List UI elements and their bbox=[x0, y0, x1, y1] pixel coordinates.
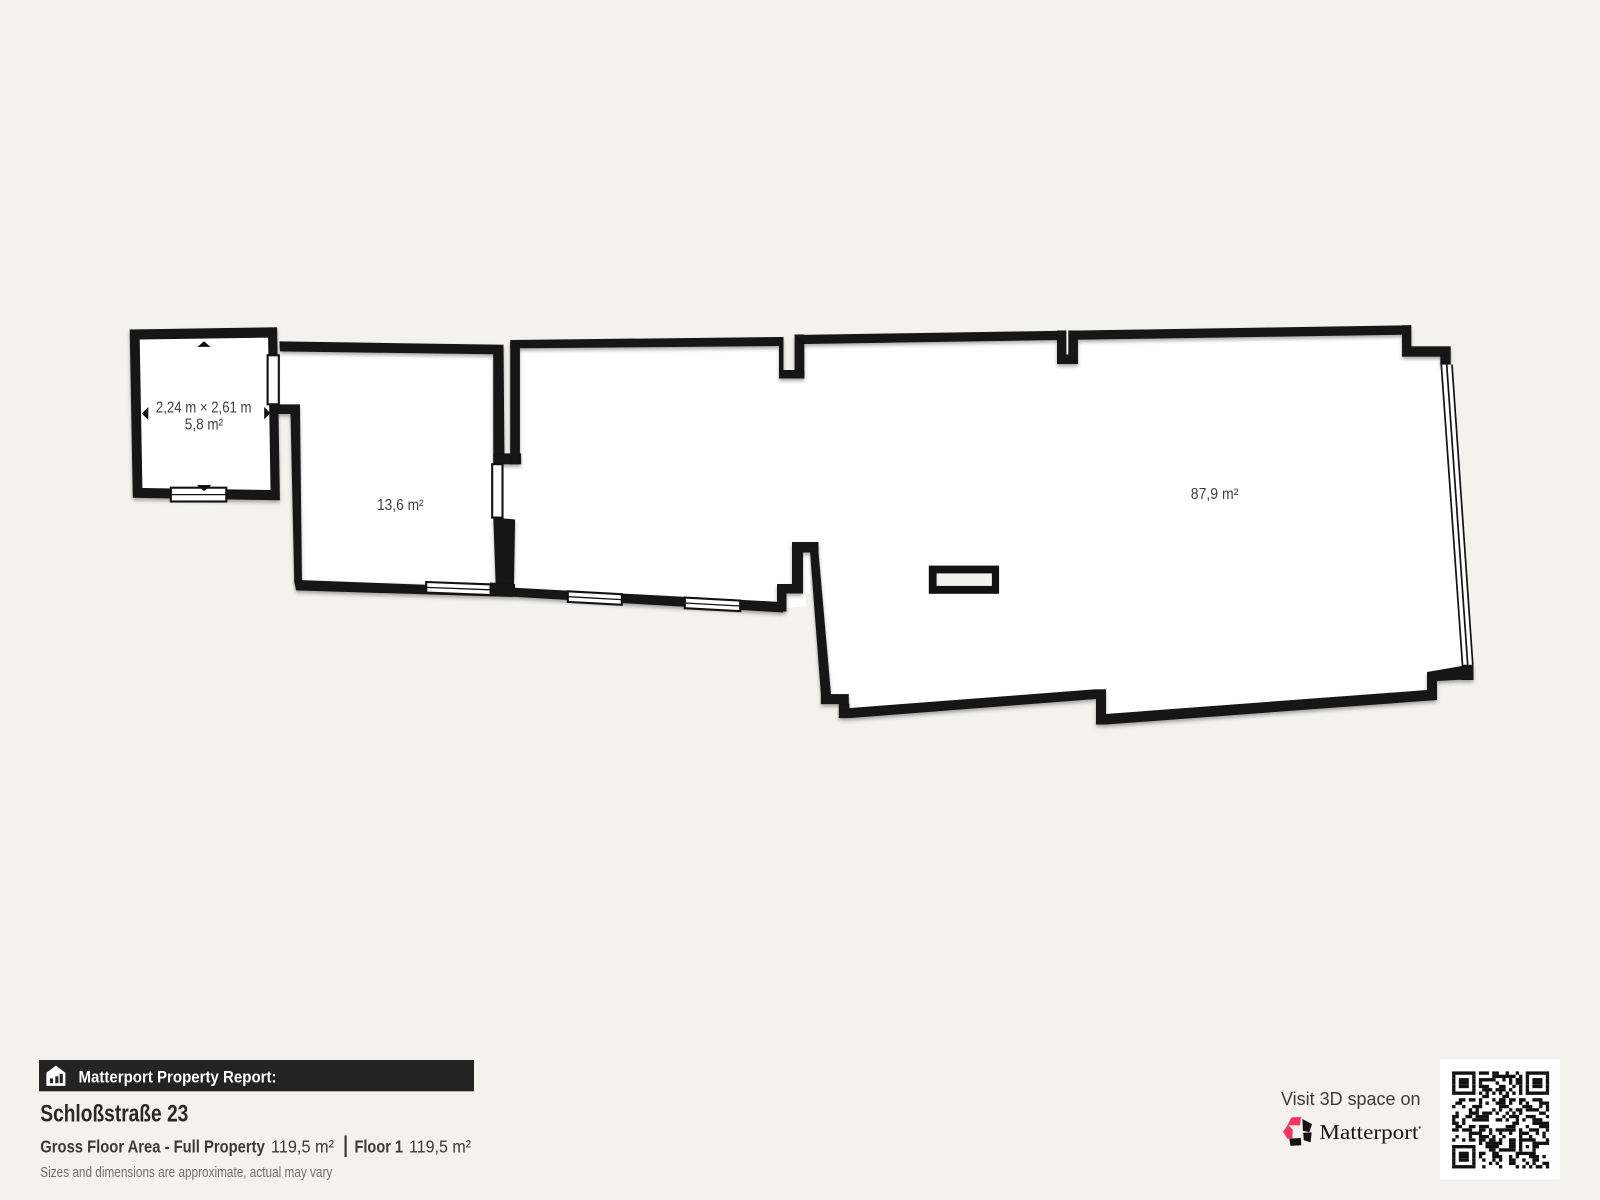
svg-text:Schloßstraße 23: Schloßstraße 23 bbox=[40, 1101, 188, 1128]
svg-text:Floor 1: Floor 1 bbox=[355, 1137, 404, 1157]
svg-text:5,8 m²: 5,8 m² bbox=[185, 417, 223, 434]
svg-text:119,5 m²: 119,5 m² bbox=[271, 1137, 334, 1157]
svg-text:13,6 m²: 13,6 m² bbox=[377, 497, 424, 514]
svg-text:Visit 3D space on: Visit 3D space on bbox=[1281, 1089, 1421, 1109]
svg-text:Matterport: Matterport bbox=[1319, 1120, 1418, 1144]
svg-text:2,24 m × 2,61 m: 2,24 m × 2,61 m bbox=[156, 400, 252, 417]
svg-text:87,9 m²: 87,9 m² bbox=[1191, 486, 1239, 503]
svg-text:Sizes and dimensions are appro: Sizes and dimensions are approximate, ac… bbox=[40, 1165, 333, 1181]
svg-text:Gross Floor Area - Full Proper: Gross Floor Area - Full Property bbox=[40, 1137, 265, 1157]
svg-text:Matterport Property Report:: Matterport Property Report: bbox=[79, 1068, 277, 1087]
svg-text:119,5 m²: 119,5 m² bbox=[409, 1137, 471, 1157]
